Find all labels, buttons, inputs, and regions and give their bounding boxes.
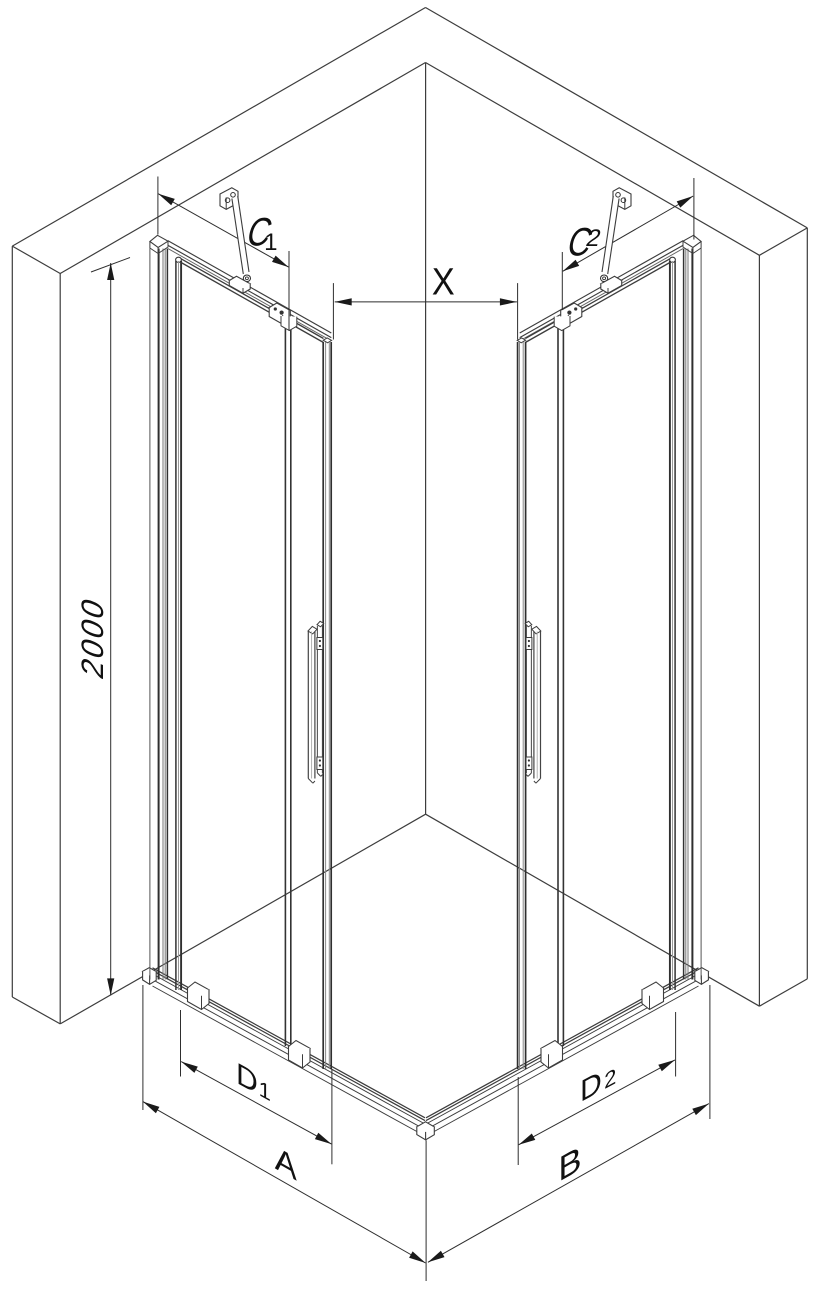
svg-text:X: X bbox=[432, 260, 455, 303]
svg-text:1: 1 bbox=[264, 229, 277, 256]
svg-text:2000: 2000 bbox=[75, 591, 110, 683]
